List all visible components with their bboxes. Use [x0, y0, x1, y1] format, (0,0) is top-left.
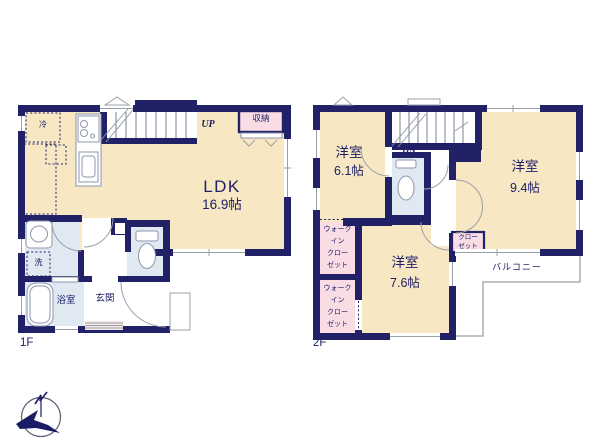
- room-61-area: 6.1帖: [314, 164, 384, 178]
- porch: [170, 293, 190, 330]
- storage-label: 収納: [239, 114, 283, 124]
- stairs-down-label: DN: [396, 146, 422, 157]
- balcony-label: バルコニー: [482, 262, 552, 272]
- compass-north-icon: [16, 392, 61, 437]
- walkin-closet-2-label: ウォーク イン クロー ゼット: [320, 283, 355, 331]
- kitchen-counter: [76, 114, 101, 186]
- floor2-label: 2F: [313, 337, 326, 350]
- entrance-step: [85, 321, 123, 330]
- washroom-sink: [26, 221, 52, 248]
- closet-label: クロー ゼット: [452, 234, 484, 251]
- walkin-closet-1-label: ウォーク イン クロー ゼット: [320, 224, 355, 272]
- room-76-area: 7.6帖: [370, 276, 440, 290]
- room-94-area: 9.4帖: [490, 181, 560, 195]
- stairs-up-label: UP: [195, 119, 221, 131]
- floor-plan-graphic: [0, 0, 600, 446]
- entrance-label: 玄関: [85, 294, 125, 305]
- floor2-stairs: [392, 112, 475, 147]
- room-76-name: 洋室: [370, 255, 440, 271]
- ldk-room-area: 16.9帖: [187, 197, 257, 213]
- floor-plan-page: 冷 収納 UP LDK 16.9帖 洗 浴室 玄関 1F 洋室 6.1帖 DN …: [0, 0, 600, 446]
- fridge-label: 冷: [26, 120, 60, 129]
- bathroom-label: 浴室: [48, 296, 84, 307]
- floor1-stairs: [100, 109, 197, 142]
- floor1-label: 1F: [20, 337, 33, 350]
- ldk-room-name: LDK: [187, 177, 257, 197]
- laundry-label: 洗: [27, 258, 50, 267]
- room-61-name: 洋室: [314, 145, 384, 161]
- room-94-name: 洋室: [490, 159, 560, 175]
